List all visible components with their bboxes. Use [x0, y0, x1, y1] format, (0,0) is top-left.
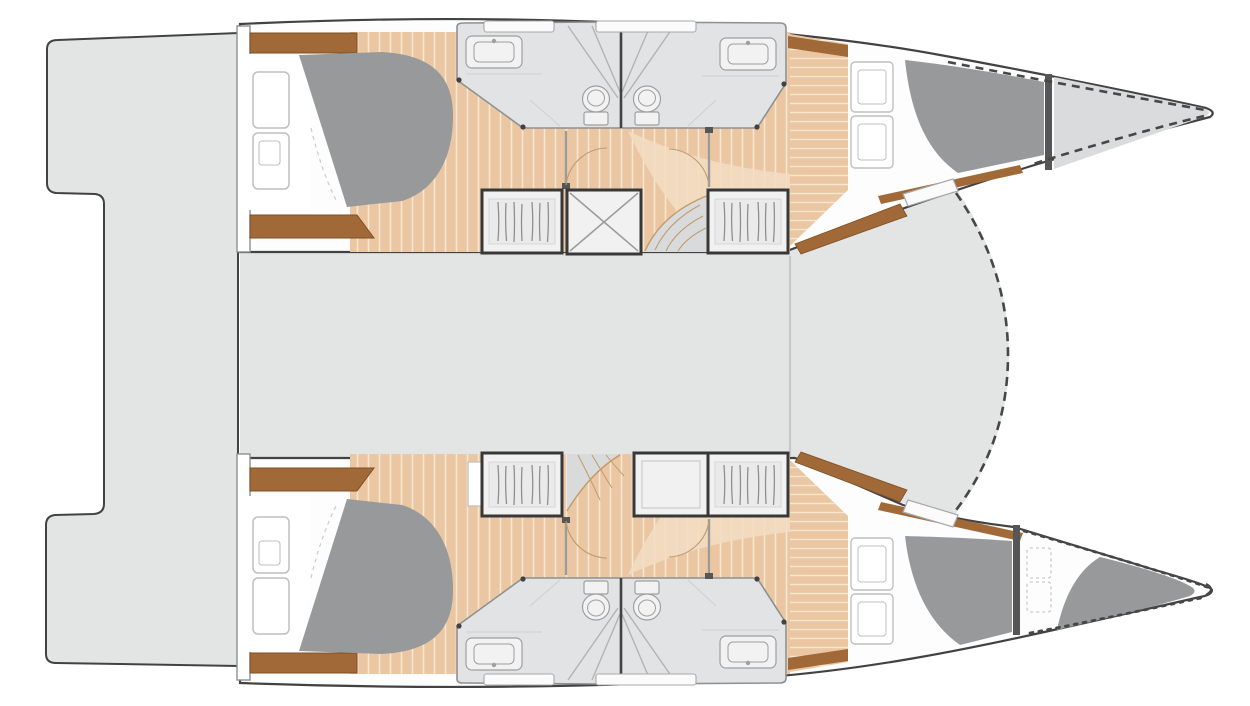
- hanging-locker: [482, 453, 562, 516]
- shelf: [468, 462, 482, 506]
- hanging-locker: [482, 190, 562, 253]
- hanging-locker: [708, 190, 788, 253]
- crash-bulkhead: [1045, 74, 1052, 170]
- deck-plan-canvas: [0, 0, 1250, 706]
- x-storage-box: [567, 190, 641, 254]
- hanging-locker: [708, 453, 788, 516]
- crash-bulkhead: [1013, 525, 1020, 635]
- storage-box: [634, 453, 708, 516]
